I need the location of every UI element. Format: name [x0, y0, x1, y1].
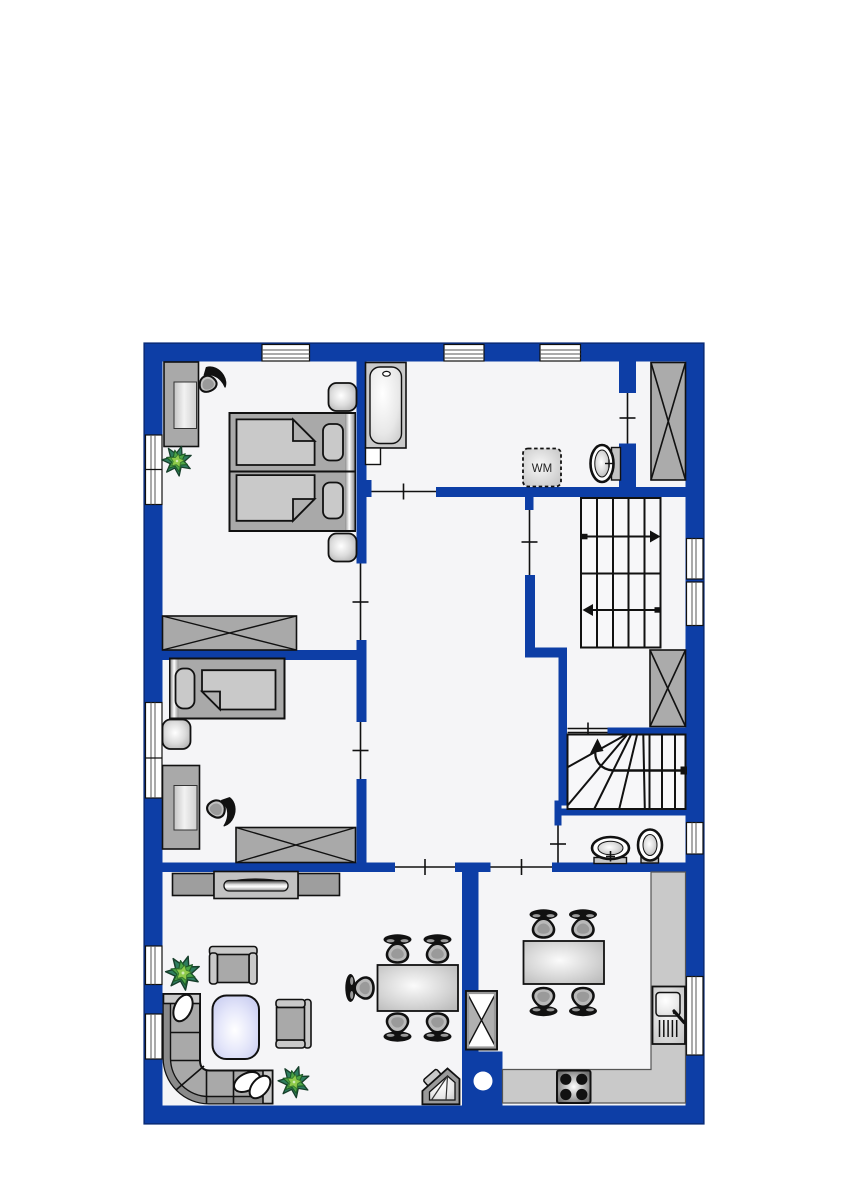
svg-text:WM: WM: [532, 463, 552, 475]
